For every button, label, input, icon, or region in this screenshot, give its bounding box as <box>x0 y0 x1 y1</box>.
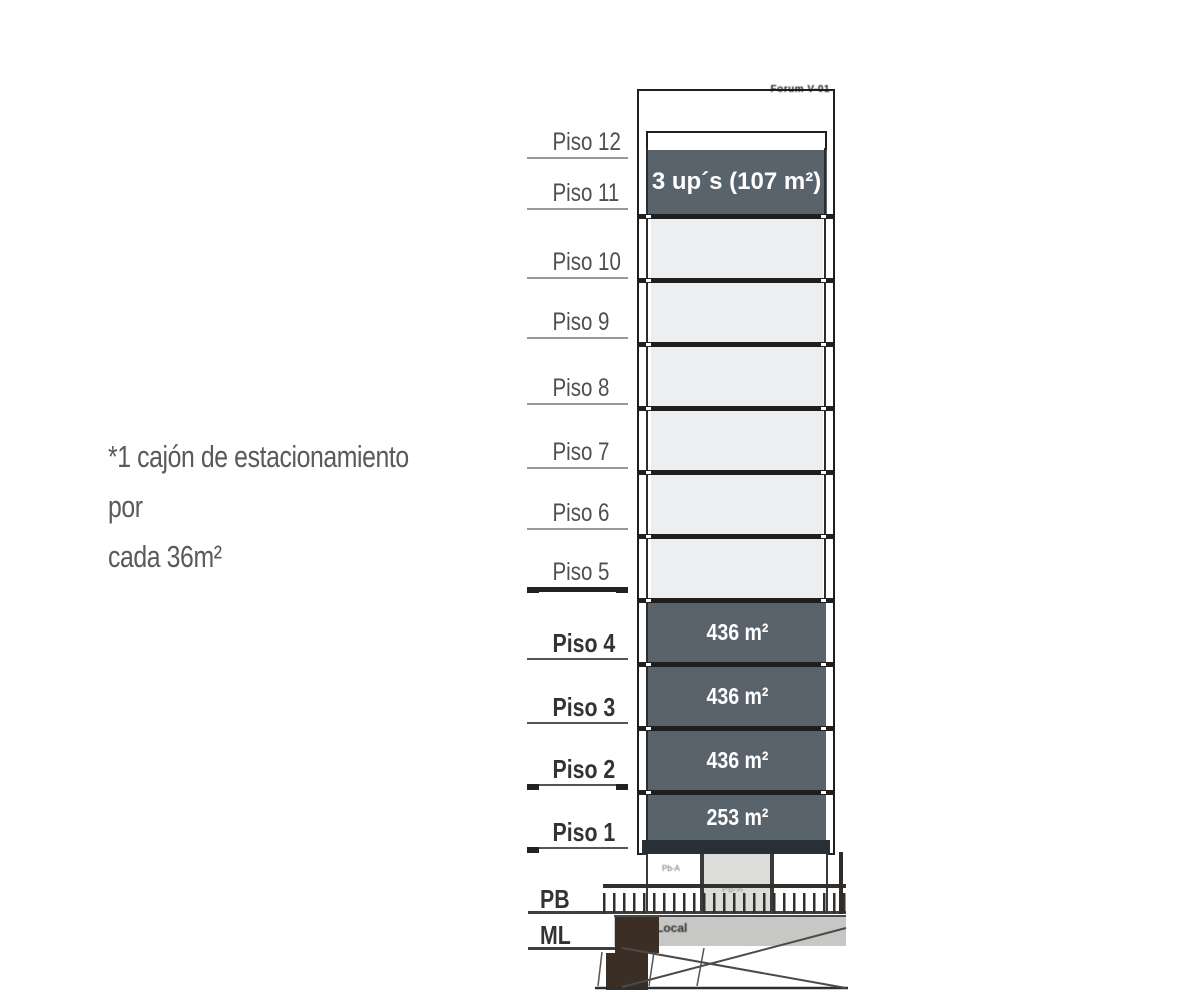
parking-footnote-line1: *1 cajón de estacionamiento por <box>108 432 444 532</box>
roof-label: Forum V-01 <box>771 84 830 95</box>
railing-end-post <box>839 852 843 914</box>
page: { "note": { "line1": "*1 cajón de estaci… <box>0 0 1200 1000</box>
floor-piso-3: 436 m² <box>648 667 826 726</box>
roof-setback <box>646 131 827 150</box>
level-label-piso-10: Piso 10 <box>527 248 628 279</box>
floor-piso-9 <box>651 283 823 342</box>
floor-piso-8 <box>651 347 823 406</box>
floor-piso-1: 253 m² <box>648 795 826 840</box>
area-label-piso-2: 436 m² <box>706 747 768 774</box>
level-label-piso-5: Piso 5 <box>527 558 628 592</box>
floor-piso-5 <box>651 539 823 598</box>
parking-footnote-line2: cada 36m² <box>108 532 444 582</box>
level-label-piso-11: Piso 11 <box>527 179 628 210</box>
level-label-piso-7: Piso 7 <box>527 438 628 469</box>
ramp-line-up <box>622 928 846 987</box>
level-label-piso-1: Piso 1 <box>527 817 628 849</box>
support-strut <box>598 952 602 986</box>
level-label-piso-2: Piso 2 <box>527 754 628 786</box>
level-label-piso-6: Piso 6 <box>527 499 628 530</box>
floor-piso-4: 436 m² <box>648 603 826 662</box>
area-label-piso-1: 253 m² <box>706 804 768 831</box>
pb-unit-left-label: Pb-A <box>662 864 680 873</box>
floor-top-units: 3 up´s (107 m²) <box>646 150 827 214</box>
level-label-piso-8: Piso 8 <box>527 374 628 405</box>
floor-piso-10 <box>651 219 823 278</box>
level-label-piso-4: Piso 4 <box>527 628 628 660</box>
support-strut <box>649 952 654 986</box>
floor-piso-6 <box>651 475 823 534</box>
floor-piso-2: 436 m² <box>648 731 826 790</box>
terrace-railing <box>603 884 846 913</box>
parking-footnote: *1 cajón de estacionamiento por cada 36m… <box>108 432 444 582</box>
ground-floor-slab <box>642 840 830 855</box>
level-label-piso-9: Piso 9 <box>527 308 628 339</box>
level-label-piso-12: Piso 12 <box>527 128 628 159</box>
top-unit-area-label: 3 up´s (107 m²) <box>652 168 821 196</box>
area-label-piso-3: 436 m² <box>706 683 768 710</box>
area-label-piso-4: 436 m² <box>706 619 768 646</box>
building-section: Forum V-01 3 up´s (107 m²) 436 m² 436 m²… <box>637 89 835 855</box>
floor-piso-7 <box>651 411 823 470</box>
level-label-piso-3: Piso 3 <box>527 692 628 724</box>
ramp-line-down <box>622 948 846 988</box>
